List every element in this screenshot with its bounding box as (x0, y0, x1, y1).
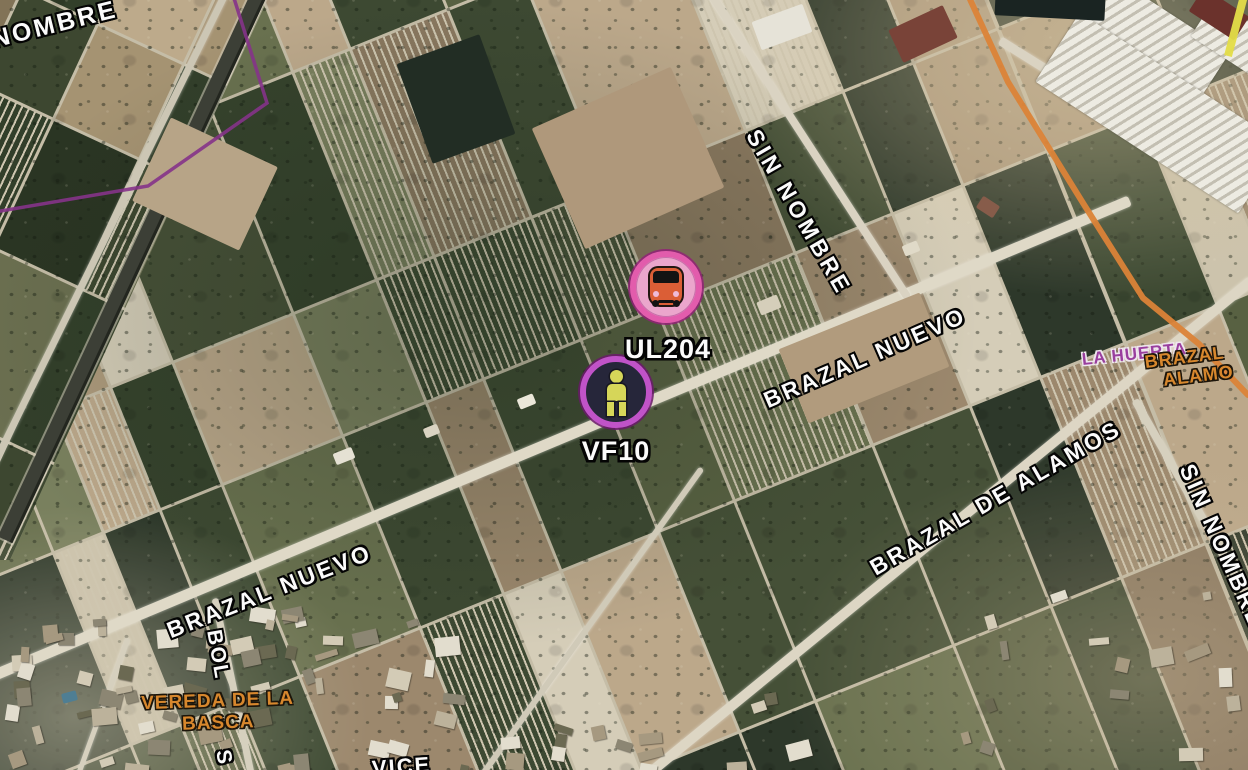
person-marker[interactable] (580, 356, 652, 428)
building (726, 762, 747, 770)
bus-bumper (658, 300, 674, 303)
bus-icon (650, 268, 682, 305)
bus-windshield (653, 271, 679, 283)
person-leg-left (607, 402, 614, 416)
building (591, 724, 606, 740)
bus-wheel-right (673, 300, 680, 307)
building (5, 704, 20, 722)
building (93, 619, 106, 627)
map-canvas[interactable]: NOMBRE SIN NOMBRE BRAZAL NUEVO BRAZAL NU… (0, 0, 1248, 770)
building (1219, 668, 1233, 687)
building (1202, 591, 1211, 600)
building (434, 636, 460, 657)
building (459, 764, 469, 770)
building (442, 692, 465, 705)
person-torso (607, 384, 626, 401)
person-marker-label: VF10 (582, 436, 651, 467)
building (91, 707, 117, 727)
building (424, 659, 435, 677)
person-head (610, 370, 623, 383)
bus-headlight-left (653, 291, 659, 297)
building (764, 692, 778, 705)
bus-marker-label: UL204 (625, 334, 711, 365)
building (1178, 747, 1203, 761)
building (1109, 689, 1129, 699)
poi-label-vereda: VEREDA DE LA BASCA (117, 687, 318, 738)
person-leg-right (619, 402, 626, 416)
bus-marker[interactable] (630, 251, 702, 323)
building (187, 657, 207, 672)
building (323, 636, 343, 646)
building (148, 739, 171, 755)
building (506, 752, 525, 770)
building (501, 736, 521, 750)
building (1226, 695, 1240, 711)
building (20, 647, 28, 662)
building (16, 688, 32, 707)
bus-headlight-right (673, 291, 679, 297)
street-label-vice-partial: VICE (371, 752, 432, 770)
building (638, 732, 662, 746)
building (285, 645, 297, 659)
building (293, 753, 309, 770)
